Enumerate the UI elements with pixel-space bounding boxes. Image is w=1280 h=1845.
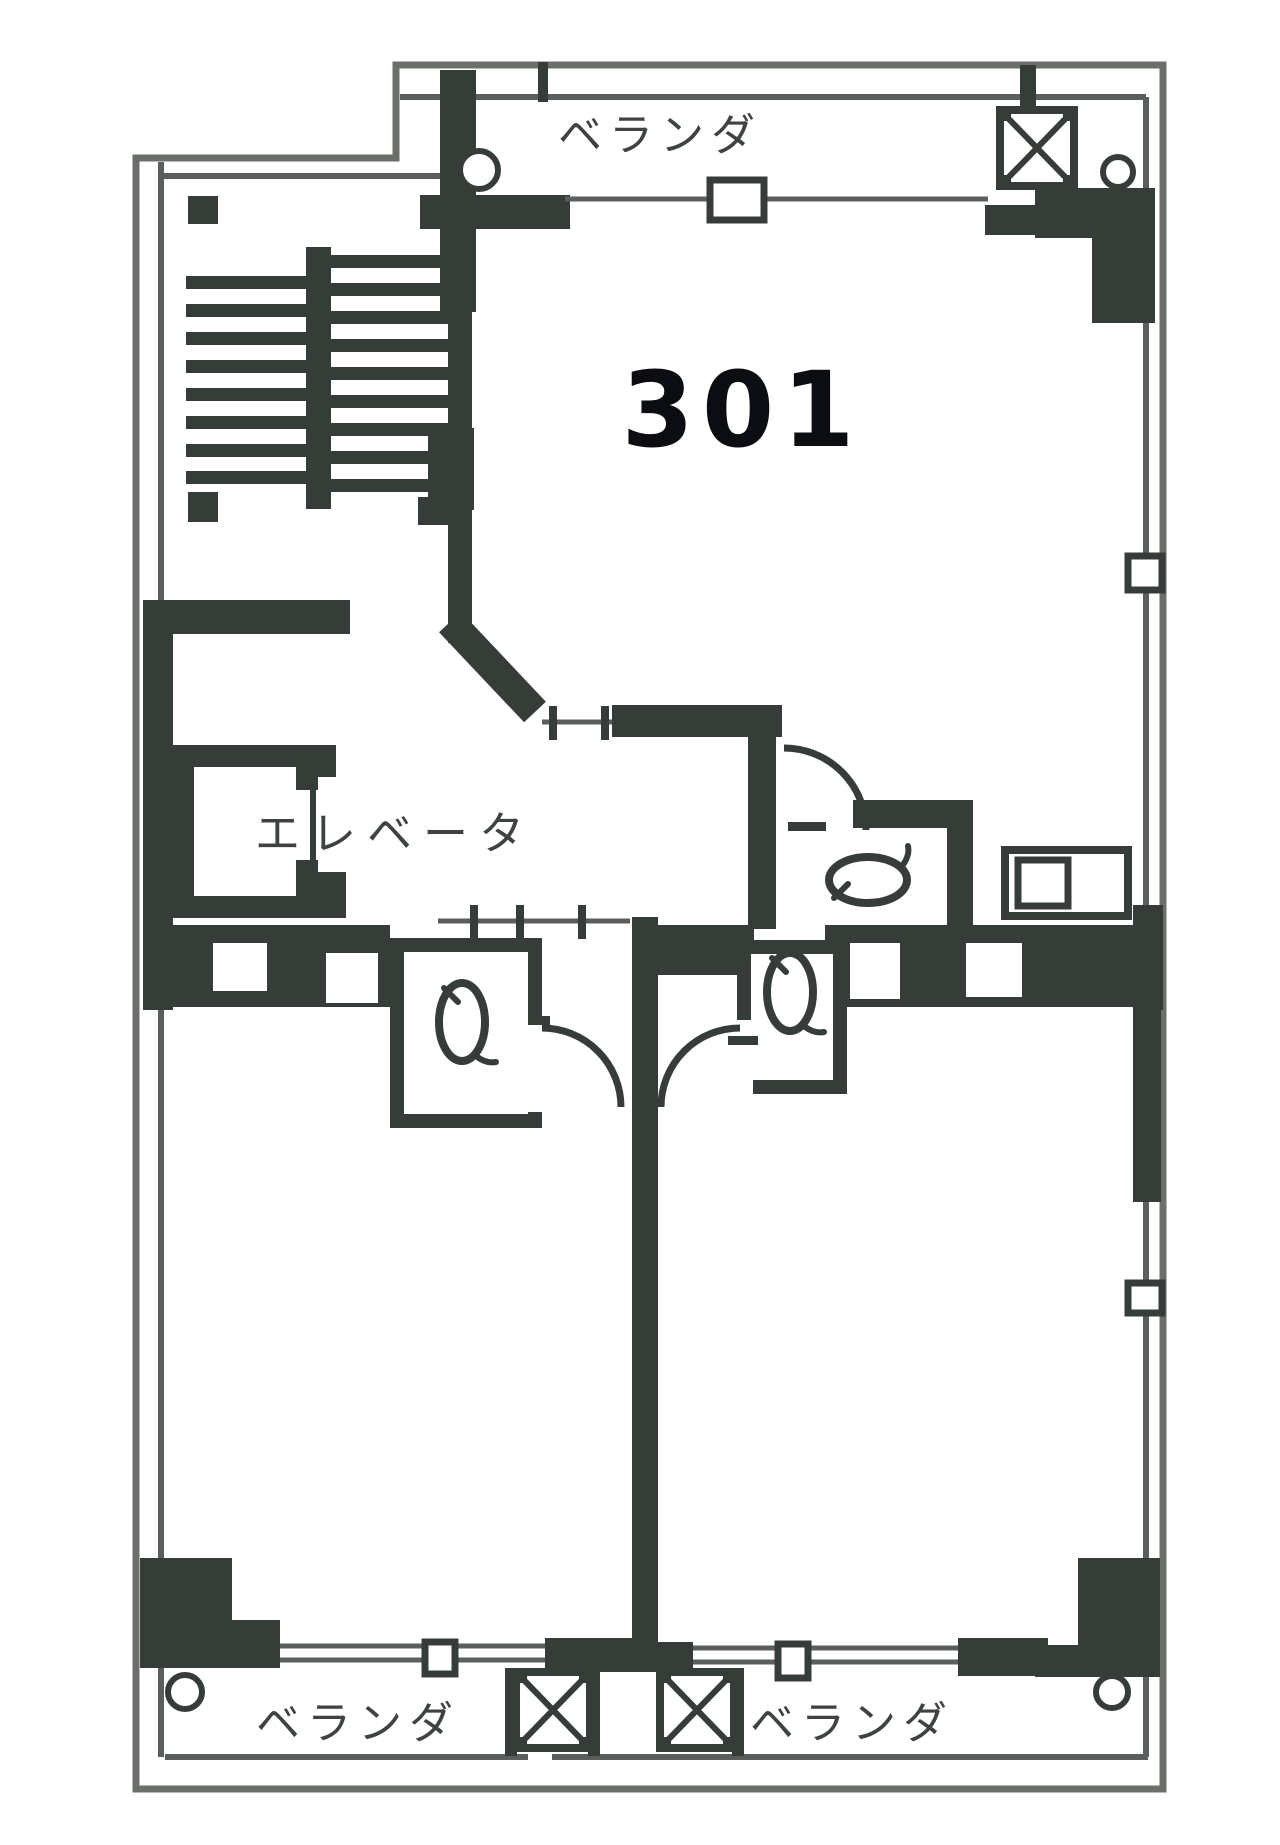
wall [538, 62, 548, 102]
window-icon [1128, 1283, 1162, 1313]
door-tick [528, 1016, 550, 1025]
pipe-shaft [326, 953, 378, 1003]
door-opening [526, 1020, 544, 1112]
pipe-shaft [850, 943, 900, 999]
veranda-bottom-left-label: ベランダ [256, 1698, 460, 1749]
wall [143, 600, 350, 634]
wall [958, 1638, 1048, 1676]
window-icon [710, 180, 764, 220]
drain-circle-icon [168, 1675, 202, 1709]
wall [632, 925, 754, 975]
unit-301: 301 [621, 349, 1163, 1010]
floor-plan: ベランダ [0, 0, 1280, 1845]
unit-number-label: 301 [621, 349, 862, 471]
wall [612, 705, 782, 737]
window-icon [778, 1644, 808, 1678]
drain-circle-icon [1096, 1676, 1128, 1708]
veranda-top-label: ベランダ [558, 110, 762, 161]
door-swing-arc-icon [542, 1028, 621, 1107]
duct-shaft-x-icon [999, 109, 1075, 187]
floor-plan-page: ベランダ [0, 0, 1280, 1845]
stair-center-rail [306, 247, 331, 509]
window-glass-line [693, 1648, 958, 1662]
wall [1133, 905, 1163, 1010]
duct-shaft-x-icon [515, 1671, 591, 1749]
threshold-tick [578, 905, 586, 939]
threshold-tick [470, 905, 478, 939]
wall [188, 196, 218, 224]
wash-pan [1005, 850, 1128, 916]
wall [545, 1638, 643, 1672]
drain-circle-icon [460, 151, 498, 189]
wall [1035, 1645, 1160, 1677]
drain-circle-icon [1103, 157, 1133, 187]
toilet-icon [829, 846, 908, 903]
wall [296, 872, 346, 918]
threshold-tick [516, 905, 524, 939]
duct-shaft-x-icon [659, 1671, 735, 1749]
wall [420, 195, 570, 229]
wall [1092, 188, 1155, 323]
wall [748, 737, 776, 929]
stairs-icon [186, 247, 451, 509]
unit-301-toilet-room [748, 737, 973, 950]
wall [440, 70, 476, 312]
center-party-wall [632, 917, 658, 1654]
wall [1078, 1558, 1160, 1658]
elevator-shaft: エレベータ [172, 745, 535, 918]
wall [643, 1642, 693, 1672]
wall [140, 1620, 280, 1668]
pipe-shaft [966, 943, 1022, 997]
elevator-label: エレベータ [255, 807, 535, 860]
wall [418, 497, 448, 525]
top-veranda: ベランダ [420, 62, 1155, 323]
wall [1133, 1007, 1161, 1202]
door-tick [728, 1036, 758, 1045]
window-icon [425, 1642, 455, 1674]
wall [296, 745, 318, 790]
threshold-tick [549, 706, 557, 740]
diagonal-wall [450, 622, 535, 712]
service-wall-band [155, 917, 1135, 1654]
pipe-shaft [213, 943, 267, 991]
unit-301-entry [450, 622, 782, 740]
wall [188, 492, 218, 522]
door-tick [788, 822, 826, 831]
window-glass-line [262, 1646, 545, 1660]
wall [172, 745, 194, 918]
window-icon [1128, 556, 1162, 590]
threshold-tick [601, 706, 609, 740]
bottom-verandas: ベランダ ベランダ [168, 1668, 1128, 1756]
veranda-bottom-right-label: ベランダ [750, 1698, 954, 1749]
lower-left-toilet-room [397, 945, 621, 1121]
stairwell [186, 196, 474, 643]
